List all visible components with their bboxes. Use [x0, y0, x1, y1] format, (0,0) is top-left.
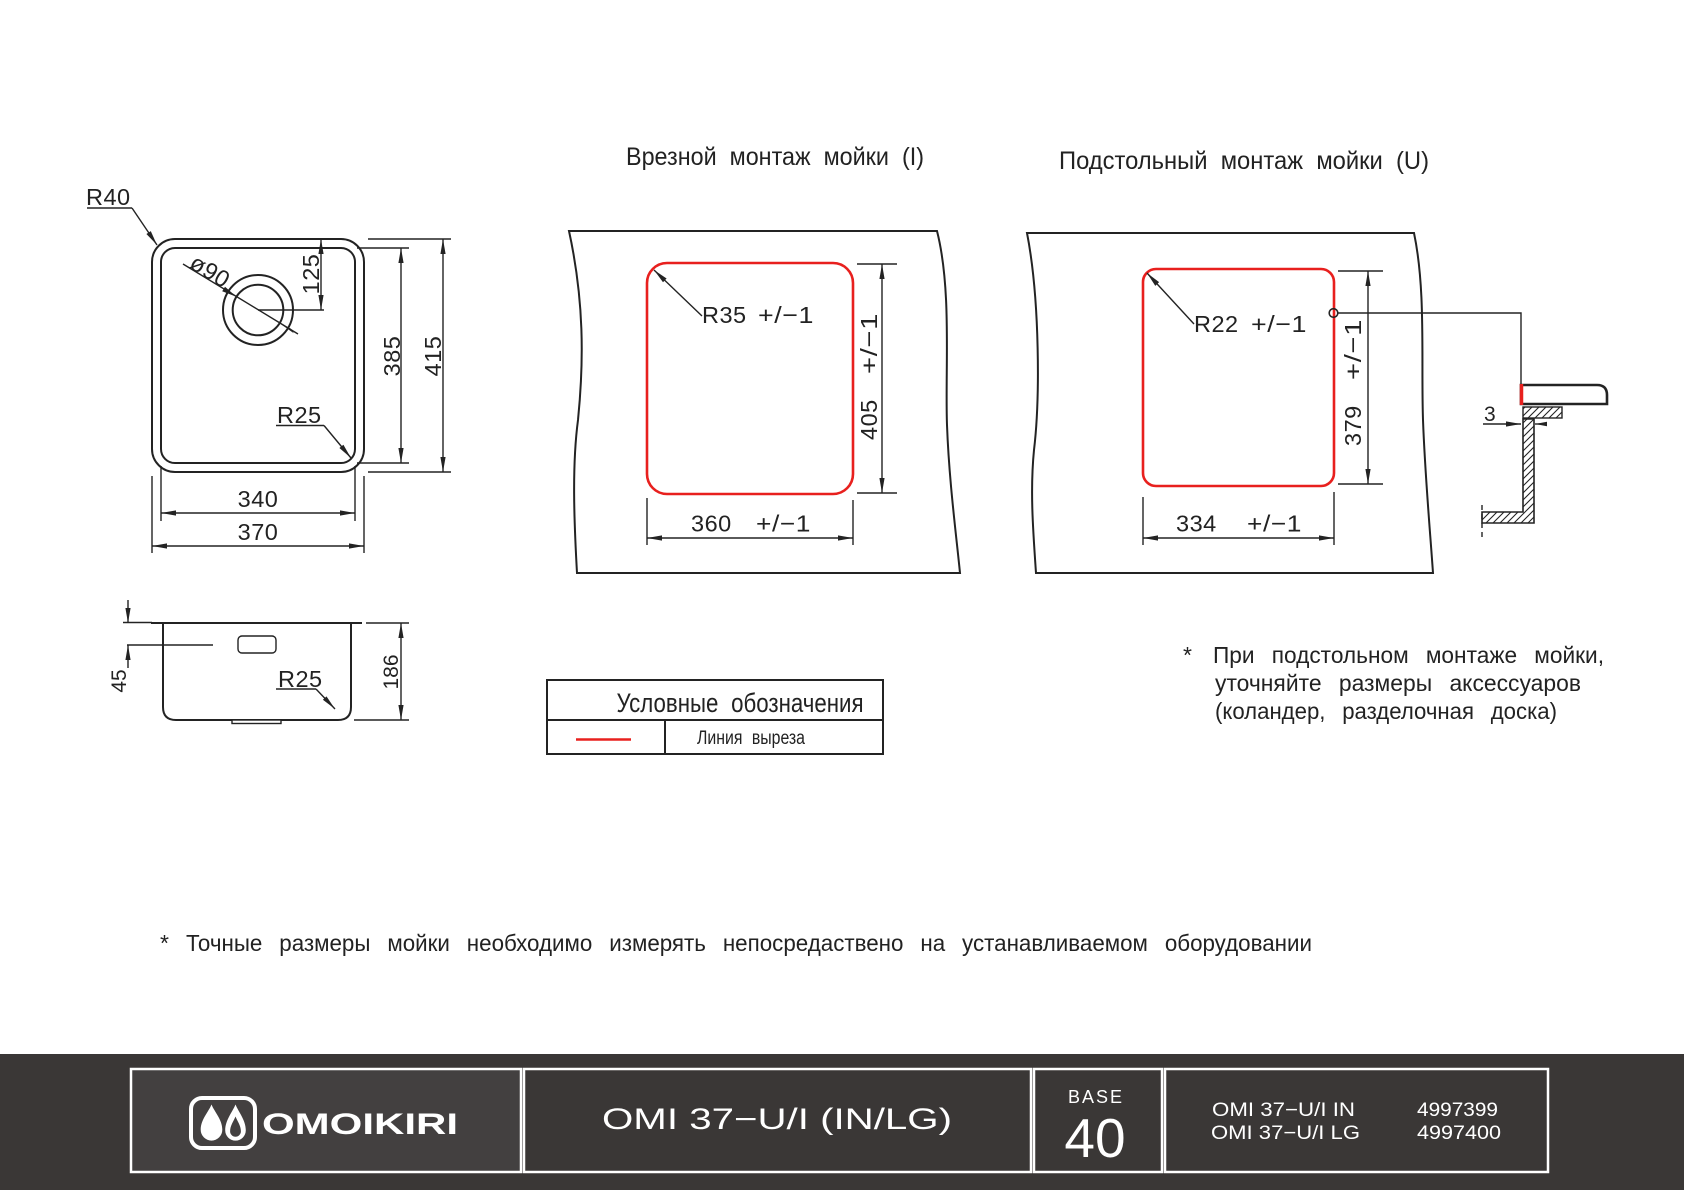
svg-text:3: 3 — [1484, 403, 1496, 426]
svg-text:R40: R40 — [86, 184, 131, 210]
svg-text:R25: R25 — [278, 666, 323, 692]
svg-text:Точные размеры мойки необходим: Точные размеры мойки необходимо измерять… — [186, 930, 1312, 956]
svg-text:379: 379 — [1340, 405, 1366, 446]
svg-text:уточняйте размеры аксессуаров: уточняйте размеры аксессуаров — [1215, 670, 1581, 696]
svg-text:OMOIKIRI: OMOIKIRI — [262, 1108, 458, 1141]
svg-text:415: 415 — [420, 336, 446, 377]
svg-text:125: 125 — [298, 254, 324, 295]
svg-text:При подстольном монтаже мойки,: При подстольном монтаже мойки, — [1213, 642, 1604, 668]
svg-text:Условные обозначения: Условные обозначения — [617, 688, 864, 718]
svg-text:+/−1: +/−1 — [758, 302, 814, 328]
svg-text:+/−1: +/−1 — [856, 313, 882, 374]
svg-text:186: 186 — [380, 654, 403, 689]
svg-text:R25: R25 — [277, 402, 322, 428]
svg-text:OMI 37−U/I LG: OMI 37−U/I LG — [1211, 1122, 1360, 1144]
svg-text:385: 385 — [379, 336, 405, 377]
svg-text:45: 45 — [108, 669, 131, 692]
svg-text:(коландер, разделочная доска): (коландер, разделочная доска) — [1215, 698, 1557, 724]
svg-text:+/−1: +/−1 — [1247, 511, 1302, 537]
svg-text:*: * — [1183, 642, 1192, 668]
svg-text:405: 405 — [856, 399, 882, 440]
svg-text:+/−1: +/−1 — [756, 511, 811, 537]
svg-text:370: 370 — [238, 519, 279, 545]
svg-text:R35: R35 — [702, 302, 747, 328]
svg-text:4997400: 4997400 — [1417, 1122, 1501, 1144]
svg-text:4997399: 4997399 — [1417, 1099, 1498, 1121]
svg-text:BASE: BASE — [1068, 1087, 1124, 1107]
svg-text:OMI 37−U/I (IN/LG): OMI 37−U/I (IN/LG) — [602, 1103, 952, 1136]
svg-text:Линия выреза: Линия выреза — [697, 728, 805, 749]
svg-text:Врезной монтаж мойки (I): Врезной монтаж мойки (I) — [626, 143, 924, 171]
svg-text:+/−1: +/−1 — [1340, 319, 1366, 380]
svg-text:OMI 37−U/I IN: OMI 37−U/I IN — [1212, 1099, 1355, 1121]
svg-text:40: 40 — [1064, 1107, 1125, 1169]
svg-text:360: 360 — [691, 511, 732, 537]
svg-text:R22: R22 — [1194, 311, 1239, 337]
svg-text:+/−1: +/−1 — [1251, 311, 1307, 337]
svg-text:334: 334 — [1176, 511, 1217, 537]
svg-text:340: 340 — [238, 486, 279, 512]
svg-text:Подстольный монтаж мойки (U): Подстольный монтаж мойки (U) — [1059, 147, 1429, 175]
svg-text:*: * — [160, 930, 169, 956]
